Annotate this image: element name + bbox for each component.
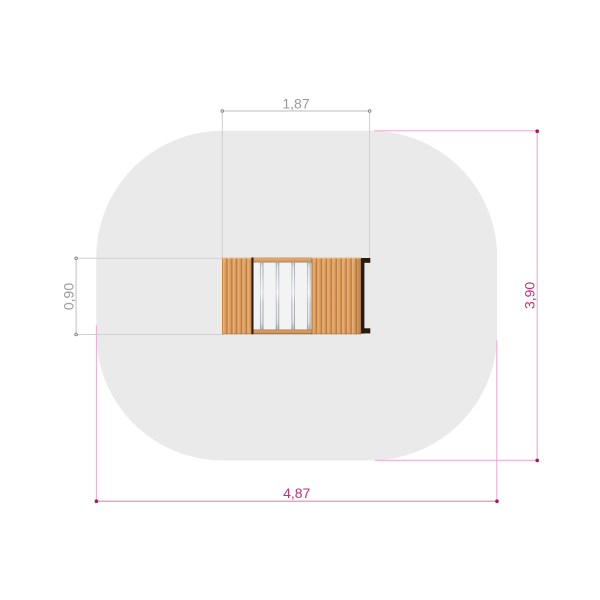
svg-text:1,87: 1,87	[282, 95, 309, 111]
svg-text:4,87: 4,87	[283, 485, 310, 501]
svg-text:3,90: 3,90	[521, 282, 537, 309]
svg-text:0,90: 0,90	[60, 283, 76, 310]
